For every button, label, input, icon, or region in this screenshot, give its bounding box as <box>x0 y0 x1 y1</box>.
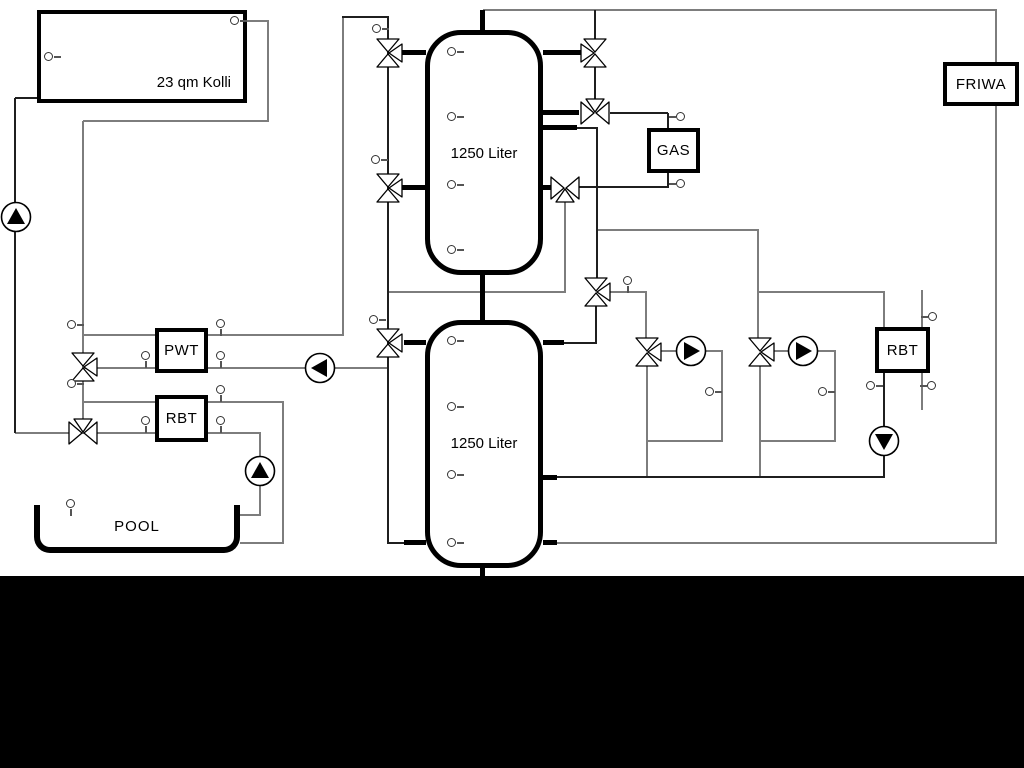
tank-stub <box>543 540 557 545</box>
diagram-canvas: 23 qm Kolli 1250 Liter 1250 Liter GAS FR… <box>0 0 1024 768</box>
gas-boiler-label: GAS <box>657 142 690 159</box>
pump-up <box>243 454 277 488</box>
temp-sensor <box>447 245 457 255</box>
temp-sensor <box>927 381 937 391</box>
pipe <box>15 97 38 99</box>
pipe <box>240 542 284 544</box>
temp-sensor <box>447 470 457 480</box>
pipe <box>342 17 344 336</box>
tank-stub <box>404 540 426 545</box>
pipe <box>83 367 389 369</box>
gas-boiler: GAS <box>647 128 700 173</box>
pipe <box>388 291 566 293</box>
pipe <box>759 364 761 478</box>
pool-basin: POOL <box>34 505 240 553</box>
three-way-valve <box>745 337 775 367</box>
temp-sensor <box>141 351 151 361</box>
three-way-valve <box>550 173 580 203</box>
tank-stub <box>400 50 426 55</box>
pipe <box>995 10 997 63</box>
three-way-valve <box>580 38 610 68</box>
friwa-label: FRIWA <box>956 76 1006 93</box>
temp-sensor <box>705 387 715 397</box>
pipe <box>758 291 885 293</box>
temp-sensor <box>447 402 457 412</box>
solar-collector: 23 qm Kolli <box>37 10 247 103</box>
temp-sensor <box>141 416 151 426</box>
pipe <box>995 106 997 544</box>
pipe <box>645 292 647 341</box>
temp-sensor <box>67 379 77 389</box>
pump-right <box>674 334 708 368</box>
tank-stub <box>404 340 426 345</box>
temp-sensor <box>216 416 226 426</box>
rbt-left-unit: RBT <box>155 395 208 442</box>
three-way-valve <box>373 173 403 203</box>
pipe <box>247 20 269 22</box>
pump-left <box>303 351 337 385</box>
pipe <box>597 229 759 231</box>
tank-stub <box>543 340 564 345</box>
pipe <box>342 16 389 18</box>
tank-stub <box>543 125 577 130</box>
pump-right <box>786 334 820 368</box>
pipe <box>757 230 759 341</box>
temp-sensor <box>447 47 457 57</box>
temp-sensor <box>230 16 240 26</box>
solar-collector-label: 23 qm Kolli <box>157 74 231 91</box>
pipe <box>760 440 836 442</box>
pipe <box>83 334 344 336</box>
pipe <box>594 10 596 40</box>
friwa-station: FRIWA <box>943 62 1019 106</box>
rbt-right-unit: RBT <box>875 327 930 373</box>
pipe <box>596 128 598 281</box>
temp-sensor <box>447 112 457 122</box>
temp-sensor <box>371 155 381 165</box>
temp-sensor <box>66 499 76 509</box>
pipe <box>555 476 885 478</box>
temp-sensor <box>447 538 457 548</box>
pipe <box>483 9 997 11</box>
buffer-tank-bottom: 1250 Liter <box>425 320 543 568</box>
temp-sensor <box>216 385 226 395</box>
temp-sensor <box>44 52 54 62</box>
tank-stub <box>480 10 485 31</box>
rbt-left-label: RBT <box>166 410 198 427</box>
three-way-valve <box>580 98 610 128</box>
temp-sensor <box>818 387 828 397</box>
three-way-valve <box>68 418 98 448</box>
three-way-valve <box>373 38 403 68</box>
temp-sensor <box>216 319 226 329</box>
temp-sensor <box>623 276 633 286</box>
pool-label: POOL <box>40 518 234 535</box>
temp-sensor <box>447 336 457 346</box>
bottom-black-band <box>0 576 1024 768</box>
pump-up <box>0 200 33 234</box>
three-way-valve <box>373 328 403 358</box>
pipe <box>610 112 668 114</box>
pump-down <box>867 424 901 458</box>
pipe <box>594 66 596 99</box>
rbt-right-label: RBT <box>887 342 919 359</box>
temp-sensor <box>676 112 686 122</box>
temp-sensor <box>216 351 226 361</box>
buffer-tank-bottom-label: 1250 Liter <box>430 435 538 452</box>
buffer-tank-top-label: 1250 Liter <box>430 145 538 162</box>
tank-stub <box>543 50 581 55</box>
pipe <box>388 542 405 544</box>
pipe <box>555 542 997 544</box>
tank-stub <box>543 110 579 115</box>
tank-stub <box>400 185 426 190</box>
pipe <box>267 21 269 122</box>
three-way-valve <box>581 277 611 307</box>
pipe <box>595 304 597 344</box>
pipe <box>883 292 885 327</box>
pwt-label: PWT <box>164 342 199 359</box>
pipe <box>387 17 389 544</box>
tank-connector <box>480 275 485 321</box>
pipe <box>259 486 261 516</box>
pipe <box>564 200 566 293</box>
tank-stub <box>543 475 557 480</box>
pipe <box>834 351 836 442</box>
pipe <box>83 120 268 122</box>
pipe <box>82 121 84 434</box>
pipe <box>563 342 596 344</box>
pipe <box>237 514 261 516</box>
temp-sensor <box>67 320 77 330</box>
pipe <box>721 351 723 442</box>
three-way-valve <box>68 352 98 382</box>
pipe <box>282 402 284 544</box>
temp-sensor <box>928 312 938 322</box>
pipe <box>14 98 16 433</box>
buffer-tank-top: 1250 Liter <box>425 30 543 275</box>
pipe <box>646 364 648 478</box>
temp-sensor <box>369 315 379 325</box>
pwt-heat-exchanger: PWT <box>155 328 208 373</box>
temp-sensor <box>866 381 876 391</box>
pipe <box>578 186 668 188</box>
temp-sensor <box>676 179 686 189</box>
temp-sensor <box>447 180 457 190</box>
pipe <box>15 432 261 434</box>
three-way-valve <box>632 337 662 367</box>
temp-sensor <box>372 24 382 34</box>
pipe <box>647 440 723 442</box>
